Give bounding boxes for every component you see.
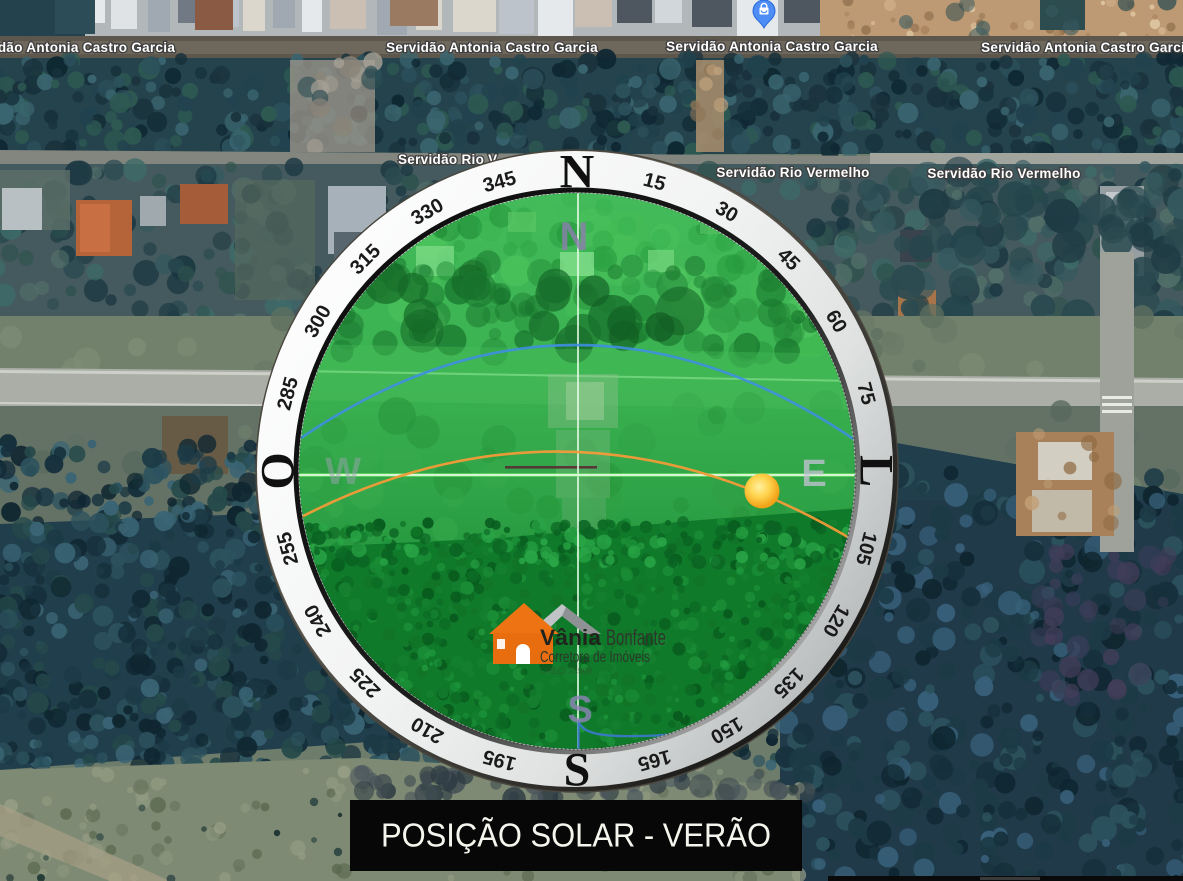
svg-text:E: E [801, 453, 826, 495]
svg-text:Servidão Rio Vermelho: Servidão Rio Vermelho [927, 166, 1080, 181]
svg-text:O: O [252, 452, 305, 489]
svg-text:Servidão Rio Vermelho: Servidão Rio Vermelho [716, 165, 869, 180]
svg-text:Corretora de Imóveis: Corretora de Imóveis [540, 649, 650, 666]
svg-text:POSIÇÃO SOLAR - VERÃO: POSIÇÃO SOLAR - VERÃO [381, 817, 771, 854]
svg-text:L: L [850, 455, 903, 487]
svg-text:S: S [564, 744, 591, 797]
svg-text:Servidão Antonia Castro Garcia: Servidão Antonia Castro Garcia [666, 39, 878, 54]
svg-text:Servidão Antonia Castro Garcia: Servidão Antonia Castro Garcia [981, 40, 1183, 55]
svg-text:vidão Antonia Castro Garcia: vidão Antonia Castro Garcia [0, 40, 175, 55]
svg-text:W: W [325, 451, 361, 493]
svg-text:CRECI 24909: CRECI 24909 [540, 666, 592, 677]
svg-text:Servidão Antonia Castro Garcia: Servidão Antonia Castro Garcia [386, 40, 598, 55]
svg-text:N: N [560, 146, 595, 199]
svg-text:Vânia: Vânia [540, 625, 602, 650]
svg-text:Bonfante: Bonfante [606, 625, 666, 650]
svg-text:S: S [567, 689, 592, 731]
svg-text:N: N [560, 215, 589, 259]
